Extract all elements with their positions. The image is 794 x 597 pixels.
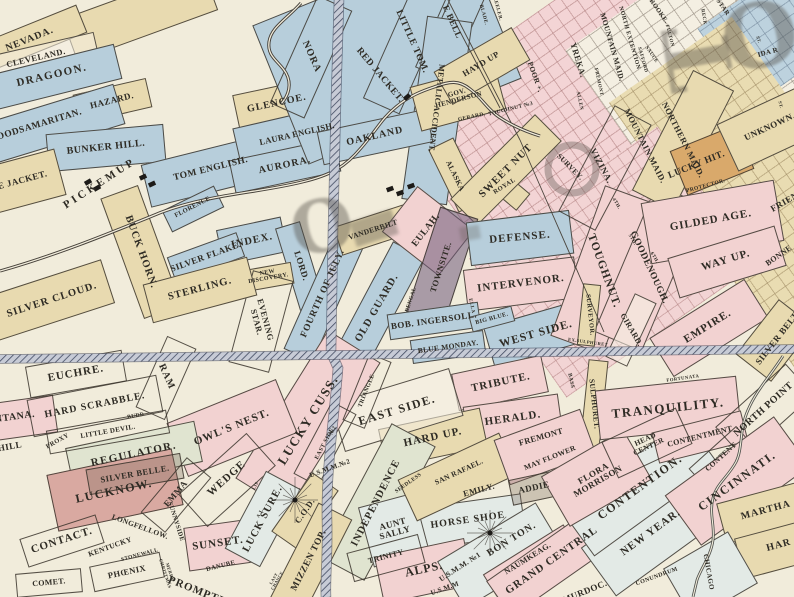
building-marker xyxy=(396,190,404,197)
building-marker xyxy=(386,186,394,193)
building-marker xyxy=(148,181,156,188)
claim-label: ST. xyxy=(777,101,783,109)
wagon-road-center xyxy=(269,3,301,104)
mining-district-map: NEVADA.CLEVELAND.DRAGOON.HAZARD.GOODSAMA… xyxy=(0,0,794,597)
building-marker xyxy=(407,183,415,190)
building-marker xyxy=(139,174,147,181)
horizontal-road xyxy=(0,349,794,359)
